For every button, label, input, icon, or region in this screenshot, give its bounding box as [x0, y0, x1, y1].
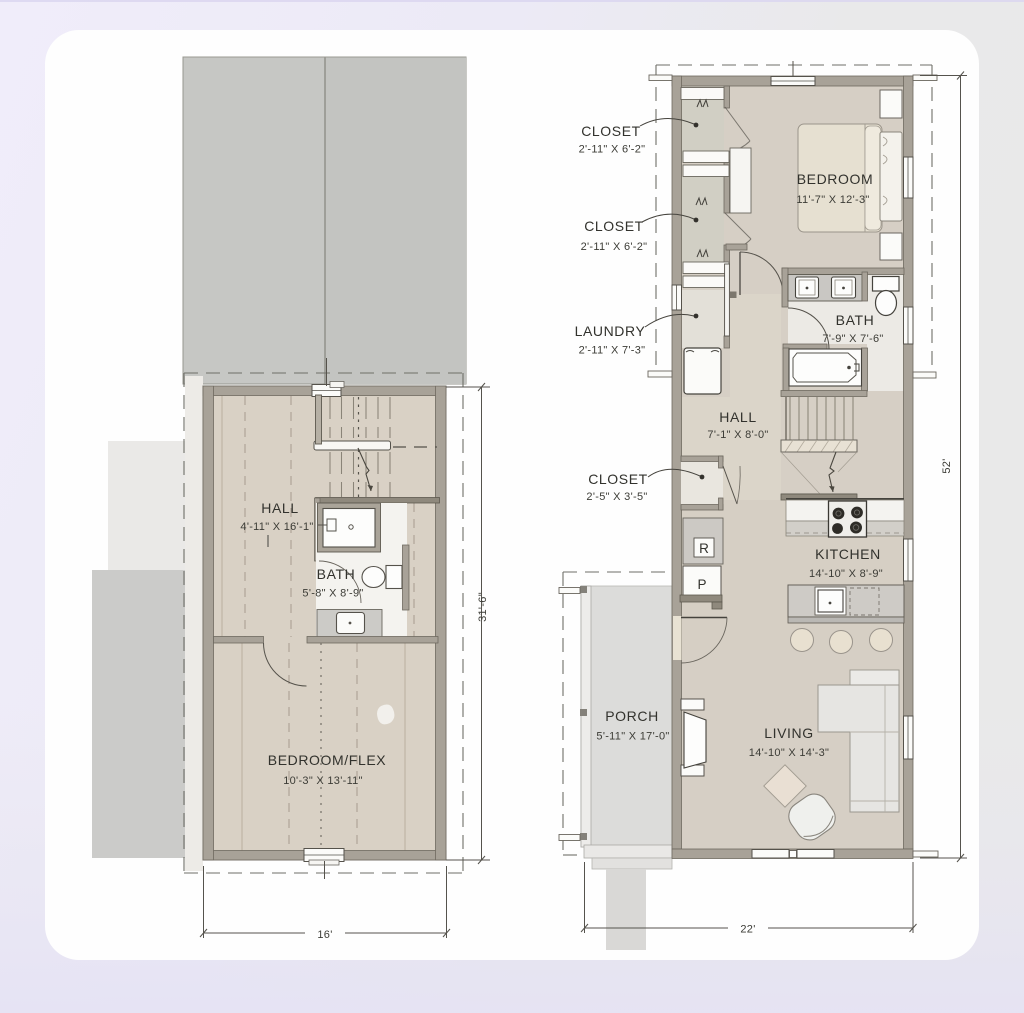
- svg-text:BATH: BATH: [317, 566, 356, 582]
- svg-text:14'-10" X 14'-3": 14'-10" X 14'-3": [749, 747, 829, 759]
- svg-text:LIVING: LIVING: [764, 725, 814, 741]
- svg-text:22': 22': [740, 924, 755, 936]
- svg-text:7'-1" X 8'-0": 7'-1" X 8'-0": [707, 429, 768, 441]
- svg-text:14'-10" X 8'-9": 14'-10" X 8'-9": [809, 568, 883, 580]
- svg-text:2'-11" X 7'-3": 2'-11" X 7'-3": [579, 345, 646, 357]
- svg-text:5'-11" X 17'-0": 5'-11" X 17'-0": [596, 731, 669, 743]
- svg-text:31'-6": 31'-6": [477, 592, 489, 622]
- svg-text:R: R: [699, 541, 709, 556]
- svg-text:PORCH: PORCH: [605, 708, 659, 724]
- svg-text:2'-11" X 6'-2": 2'-11" X 6'-2": [579, 144, 646, 156]
- svg-text:16': 16': [317, 929, 332, 941]
- svg-text:11'-7" X 12'-3": 11'-7" X 12'-3": [796, 194, 869, 206]
- svg-text:HALL: HALL: [261, 500, 298, 516]
- svg-text:CLOSET: CLOSET: [584, 218, 644, 234]
- svg-text:5'-8" X 8'-9": 5'-8" X 8'-9": [302, 588, 363, 600]
- svg-text:4'-11" X 16'-1": 4'-11" X 16'-1": [240, 521, 313, 533]
- svg-text:LAUNDRY: LAUNDRY: [575, 323, 646, 339]
- svg-text:10'-3" X 13'-11": 10'-3" X 13'-11": [283, 775, 363, 787]
- svg-text:2'-5" X 3'-5": 2'-5" X 3'-5": [586, 491, 647, 503]
- svg-text:7'-9" X 7'-6": 7'-9" X 7'-6": [822, 333, 883, 345]
- svg-text:HALL: HALL: [719, 409, 756, 425]
- svg-text:CLOSET: CLOSET: [588, 471, 648, 487]
- svg-text:BEDROOM/FLEX: BEDROOM/FLEX: [268, 752, 387, 768]
- svg-text:BATH: BATH: [836, 312, 875, 328]
- svg-text:KITCHEN: KITCHEN: [815, 546, 881, 562]
- svg-text:CLOSET: CLOSET: [581, 123, 641, 139]
- svg-text:52': 52': [941, 458, 953, 473]
- svg-text:2'-11" X 6'-2": 2'-11" X 6'-2": [581, 241, 648, 253]
- svg-text:P: P: [697, 577, 706, 592]
- svg-text:BEDROOM: BEDROOM: [797, 171, 874, 187]
